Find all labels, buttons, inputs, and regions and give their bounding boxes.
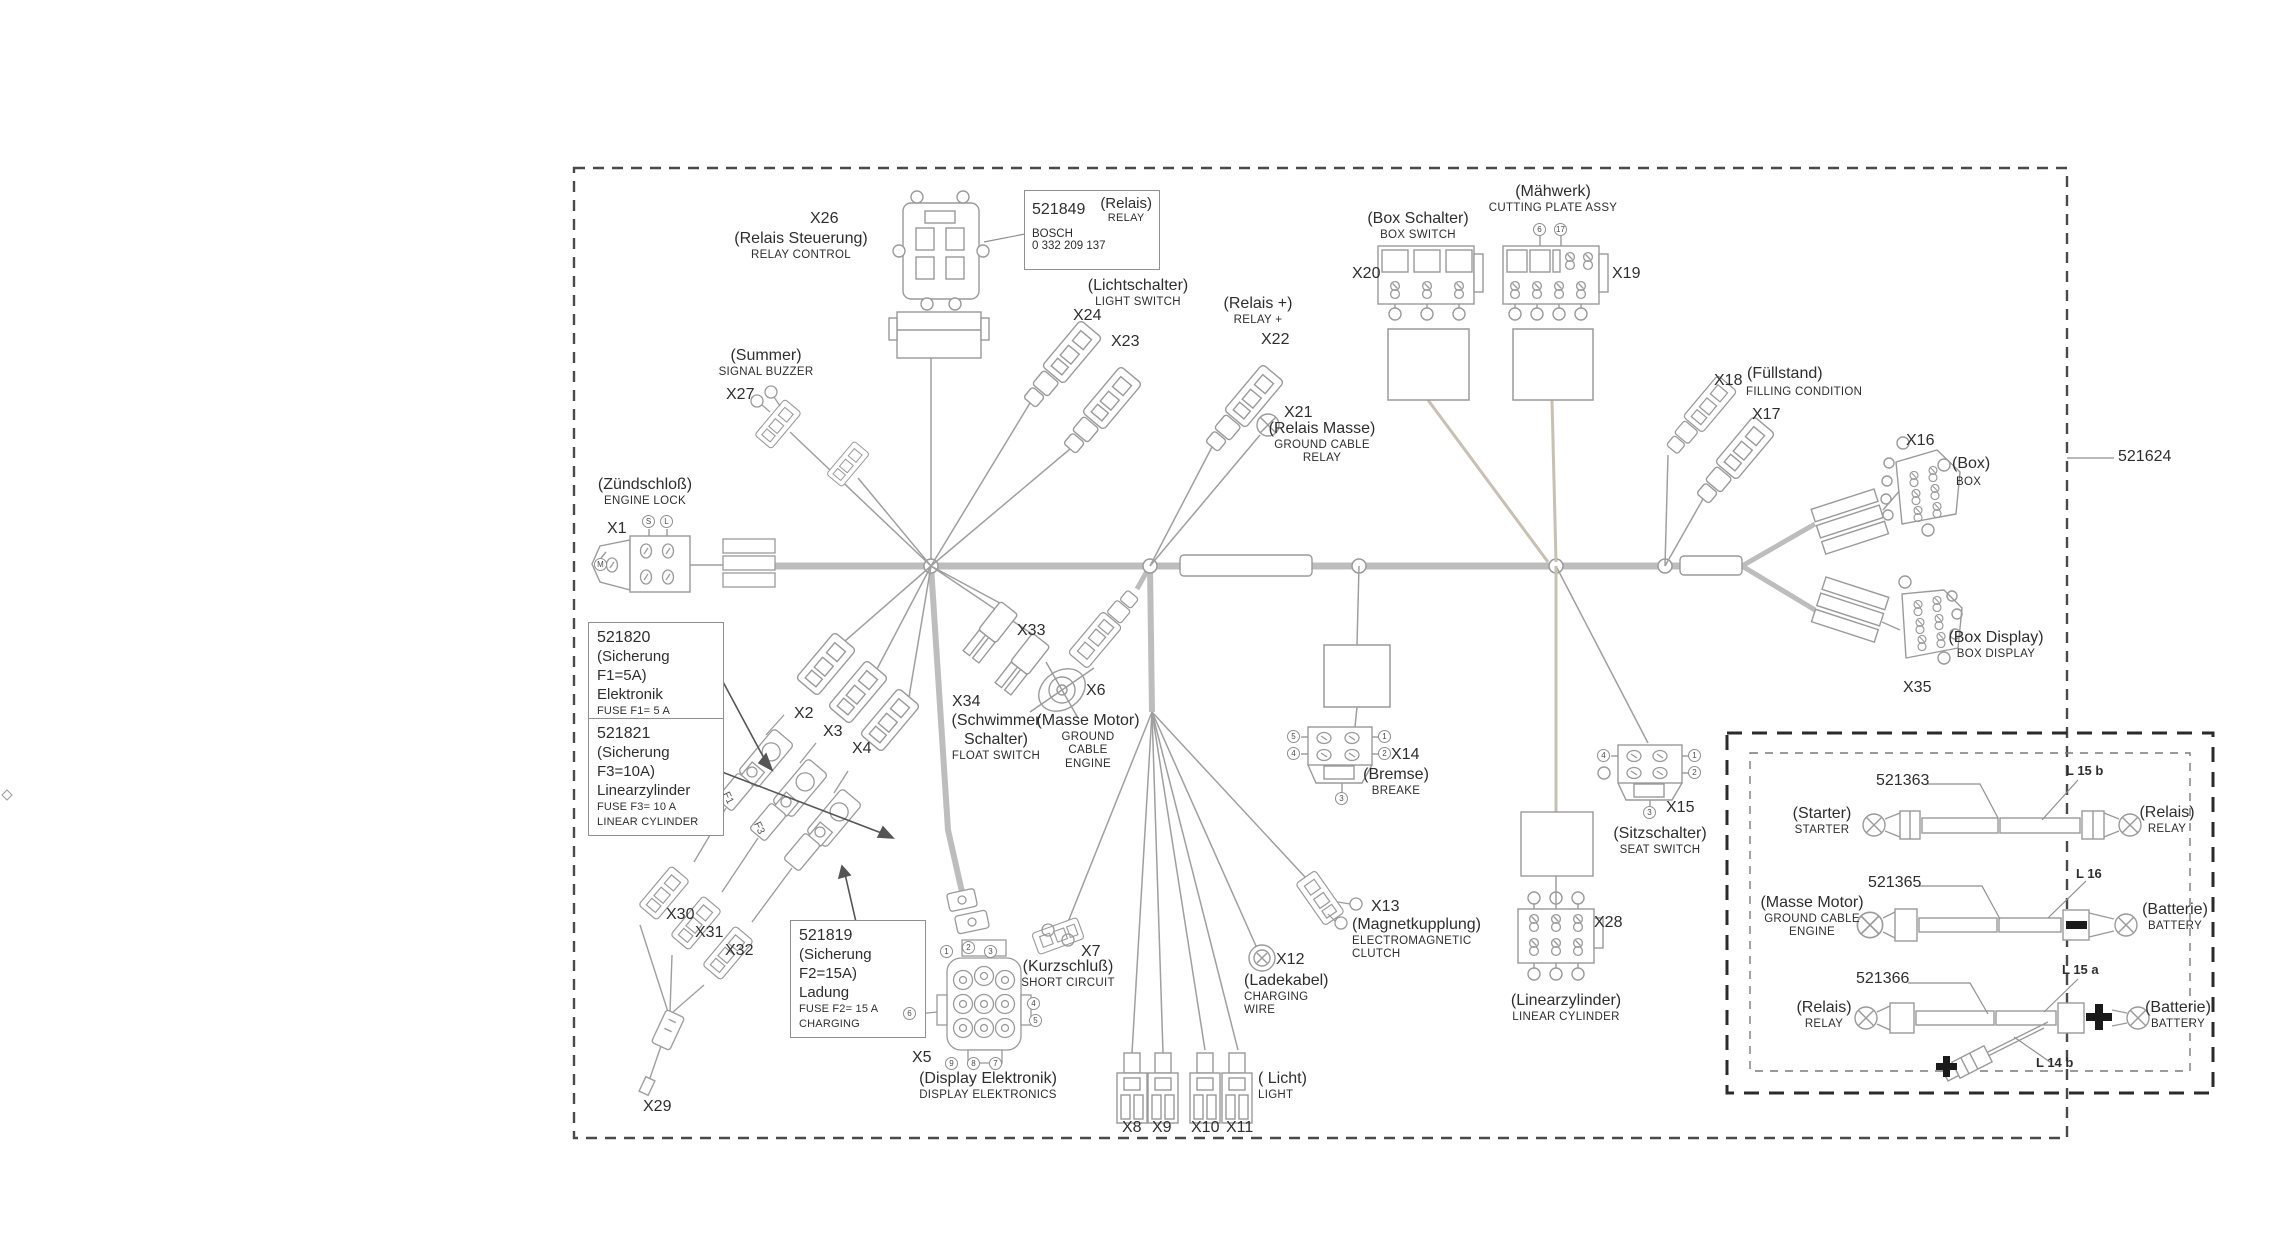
brand-part-number: 0 332 209 137 [1032,240,1152,252]
label-x35-de: (Box Display) [1948,629,2043,648]
part-name-en: FUSE F2= 15 A [799,1002,917,1017]
pin-label: 3 [1643,806,1656,819]
inset-cable2-right-de: (Batterie) [2142,901,2208,920]
connector-id-x27: X27 [726,386,754,405]
connector-id-x24: X24 [1073,307,1101,326]
label-x7-de: (Kurzschluß) [1021,958,1115,977]
connector-id-x35: X35 [1903,679,1931,698]
connector-x7-glyph [1032,917,1085,954]
connector-id-x10: X10 [1191,1119,1219,1138]
part-box-relay: 521849 (Relais) RELAY BOSCH 0 332 209 13… [1024,190,1160,270]
inset-cable3-left-en: RELAY [1796,1018,1851,1032]
label-x12-de: (Ladekabel) [1244,972,1329,991]
connector-x20-glyph [1378,246,1483,320]
label-x5-en: DISPLAY ELEKTRONICS [919,1089,1057,1103]
connector-id-x15: X15 [1666,799,1694,818]
brand-name: BOSCH [1032,228,1152,240]
label-x27-de: (Summer) [719,347,814,366]
label-x14-en: BREAKE [1363,785,1429,799]
pin-label: 4 [1597,749,1610,762]
label-x22-de: (Relais +) [1224,295,1293,314]
connector-id-x34: X34 [952,693,980,712]
part-name-en: LINEAR CYLINDER [597,815,715,830]
connector-id-x5: X5 [912,1049,932,1068]
part-name-en: FUSE F1= 5 A [597,704,715,719]
harness-part-number: 521624 [2118,448,2171,467]
label-x7-en: SHORT CIRCUIT [1021,977,1115,991]
label-x6-de: (Masse Motor) [1036,712,1139,731]
part-name: Linearzylinder [597,782,715,801]
part-box-fuse-f3: 521821 (Sicherung F3=10A) Linearzylinder… [588,718,724,836]
connector-id-x31: X31 [695,924,723,943]
label-x34-en: FLOAT SWITCH [952,750,1041,764]
connector-x12-glyph [1249,945,1275,971]
label-x18-en: FILLING CONDITION [1746,386,1862,400]
connector-id-x8: X8 [1122,1119,1142,1138]
label-x14-de: (Bremse) [1363,766,1429,785]
label-x34-de: Schalter) [952,731,1041,750]
label-x19-de: (Mähwerk) [1489,183,1618,202]
part-name-en: CHARGING [799,1017,917,1032]
label-x1-de: (Zündschloß) [598,476,692,495]
inset-cable1-right-de: (Relais) [2139,804,2194,823]
inset-cable2-left-de: (Masse Motor) [1760,894,1863,913]
connector-id-x23: X23 [1111,333,1139,352]
label-x13-de: (Magnetkupplung) [1352,916,1481,935]
connector-id-x26: X26 [810,210,838,229]
inset-length-l14b: L 14 b [2036,1055,2073,1070]
part-name-de: (Sicherung F2=15A) [799,946,917,984]
pin-label: 1 [940,945,953,958]
label-x28-de: (Linearzylinder) [1511,992,1621,1011]
label-x21-en: GROUND CABLE [1269,439,1376,453]
label-x18-de: (Füllstand) [1747,365,1823,384]
label-x34-de: (Schwimmer [952,712,1041,731]
inset-length-l16: L 16 [2076,866,2102,881]
connector-id-x20: X20 [1352,265,1380,284]
inset-part-number-521365: 521365 [1868,874,1921,893]
part-name-en: RELAY [1100,212,1152,224]
connector-spare-glyph [826,441,869,487]
connector-id-x4: X4 [852,740,872,759]
inset-part-number-521363: 521363 [1876,772,1929,791]
connectors-x8-x11-glyph [1117,1053,1252,1123]
label-licht-en: LIGHT [1258,1089,1307,1103]
pin-label: 3 [1335,792,1348,805]
inset-cable1-left-de: (Starter) [1793,805,1852,824]
pin-label: 2 [962,941,975,954]
label-x12-en: WIRE [1244,1004,1329,1018]
connector-id-x16: X16 [1906,432,1934,451]
pin-label: 9 [945,1057,958,1070]
connector-id-x28: X28 [1594,914,1622,933]
box-switch-body [1388,329,1469,400]
pin-label: M [594,558,607,571]
sleeve-block [1324,645,1390,707]
wiring-diagram-page: 521849 (Relais) RELAY BOSCH 0 332 209 13… [0,0,2273,1240]
label-x13-en: ELECTROMAGNETIC [1352,935,1481,949]
part-number: 521821 [597,724,715,744]
part-name-de: (Sicherung F1=5A) [597,648,715,686]
connector-x16-glyph [1811,437,1960,554]
connector-x34-glyph [962,601,1018,663]
label-x6-en: GROUND [1036,731,1139,745]
relay-box-leader [984,234,1025,242]
relay-x26-glyph [889,191,989,358]
pin-label: 1 [1378,730,1391,743]
label-x35-en: BOX DISPLAY [1948,648,2043,662]
pin-label: 5 [1287,730,1300,743]
part-name-en: FUSE F3= 10 A [597,800,715,815]
connector-id-x1: X1 [607,520,627,539]
part-name-de: (Relais) [1100,195,1152,212]
inset-cable3-left-de: (Relais) [1796,999,1851,1018]
inset-cable-521363 [1863,811,2141,839]
label-x16-de: (Box) [1952,455,1990,474]
label-x21-de: (Relais Masse) [1269,420,1376,439]
inset-cable2-left-en: GROUND CABLE [1760,913,1863,927]
connector-id-x32: X32 [725,942,753,961]
label-x19-en: CUTTING PLATE ASSY [1489,202,1618,216]
part-number: 521849 [1032,201,1085,219]
inset-cable3-right-en: BATTERY [2145,1018,2211,1032]
connector-id-x29: X29 [643,1098,671,1117]
harness-artwork [0,0,2273,1240]
label-x27-en: SIGNAL BUZZER [719,366,814,380]
inset-cable1-left-en: STARTER [1793,824,1852,838]
connector-x24-glyph [1019,320,1102,412]
part-box-fuse-f2: 521819 (Sicherung F2=15A) Ladung FUSE F2… [790,920,926,1038]
label-x5-de: (Display Elektronik) [919,1070,1057,1089]
connector-x5-glyph [917,888,1031,1063]
connector-id-x11: X11 [1226,1119,1253,1138]
pin-label: 4 [1027,997,1040,1010]
inset-length-l15a: L 15 a [2062,962,2099,977]
stray-mark [2,790,12,800]
pin-label: 4 [1287,747,1300,760]
loom-lines [1428,400,1556,812]
connector-id-x9: X9 [1152,1119,1172,1138]
inset-length-l15b: L 15 b [2066,763,2103,778]
pin-label: 5 [1029,1014,1042,1027]
label-x22-en: RELAY + [1224,314,1293,328]
inset-cable3-right-de: (Batterie) [2145,999,2211,1018]
connector-x28-glyph [1518,812,1603,980]
connector-x29-glyph [639,925,704,1095]
pin-label: 3 [984,945,997,958]
connector-id-x6: X6 [1086,682,1106,701]
cutting-plate-body [1513,329,1593,400]
label-x16-en: BOX [1956,476,1981,490]
connector-id-x3: X3 [823,723,843,742]
inset-cable1-right-en: RELAY [2139,823,2194,837]
pin-label: 2 [1378,747,1391,760]
inset-cable2-left-en: ENGINE [1760,926,1863,940]
label-light-switch-en: LIGHT SWITCH [1088,296,1188,310]
label-light-switch-de: (Lichtschalter) [1088,277,1188,296]
connector-x19-glyph [1503,236,1608,320]
connector-id-x22: X22 [1261,331,1289,350]
label-x21-en: RELAY [1269,452,1376,466]
inset-cable2-right-en: BATTERY [2142,920,2208,934]
connector-id-x2: X2 [794,705,814,724]
label-licht-de: ( Licht) [1258,1070,1307,1089]
pin-label: L [660,515,673,528]
pin-label: 6 [1533,223,1546,236]
connector-id-x30: X30 [666,906,694,925]
label-x28-en: LINEAR CYLINDER [1511,1011,1621,1025]
connector-id-x33: X33 [1017,622,1045,641]
part-name-de: (Sicherung F3=10A) [597,744,715,782]
connector-id-x17: X17 [1752,406,1780,425]
connector-x23-glyph [1059,366,1142,458]
part-name: Ladung [799,984,917,1003]
label-x20-en: BOX SWITCH [1367,229,1468,243]
connector-id-x18: X18 [1714,372,1742,391]
pin-label: 6 [903,1007,916,1020]
part-number: 521819 [799,926,917,946]
connector-x27-glyph [751,386,801,449]
connector-id-x14: X14 [1391,746,1419,765]
label-x15-de: (Sitzschalter) [1613,825,1706,844]
label-x26-en: RELAY CONTROL [734,249,867,263]
connector-id-x12: X12 [1276,951,1304,970]
label-x1-en: ENGINE LOCK [598,495,692,509]
pin-label: 7 [989,1057,1002,1070]
label-x6-en: CABLE [1036,744,1139,758]
connector-id-x19: X19 [1612,265,1640,284]
label-x15-en: SEAT SWITCH [1613,844,1706,858]
label-x6-en: ENGINE [1036,758,1139,772]
connector-x15-glyph [1598,745,1688,806]
label-x20-de: (Box Schalter) [1367,210,1468,229]
label-x26-de: (Relais Steuerung) [734,230,867,249]
inset-part-number-521366: 521366 [1856,970,1909,989]
pin-label: 2 [1688,766,1701,779]
pin-label: 17 [1554,223,1567,236]
connector-id-x13: X13 [1371,898,1399,917]
pin-label: S [642,515,655,528]
part-number: 521820 [597,628,715,648]
label-x13-en: CLUTCH [1352,948,1481,962]
part-name: Elektronik [597,686,715,705]
label-x12-en: CHARGING [1244,991,1329,1005]
pin-label: 1 [1688,749,1701,762]
connector-x35-glyph [1812,576,1962,664]
pin-label: 8 [967,1057,980,1070]
